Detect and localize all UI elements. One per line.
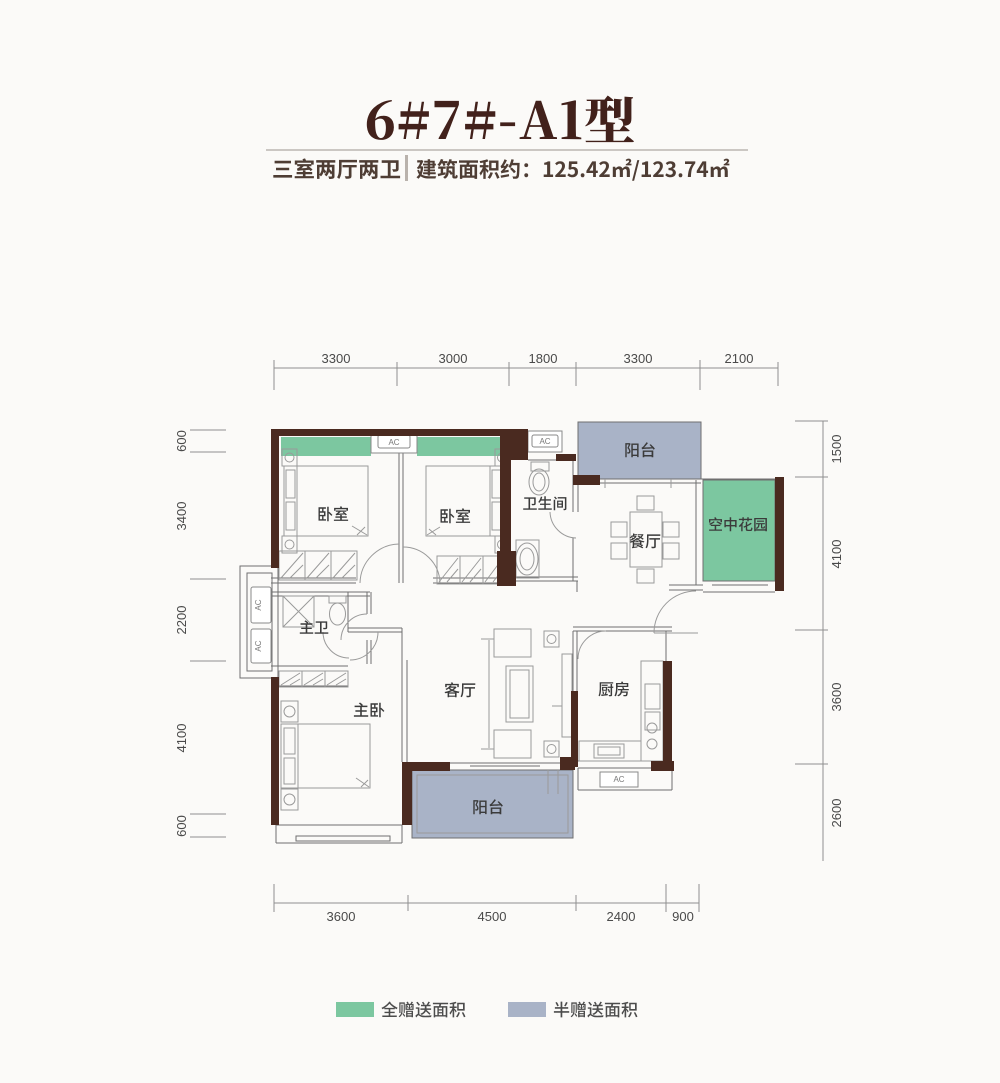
svg-text:4100: 4100 [829,540,844,569]
svg-text:1500: 1500 [829,435,844,464]
svg-text:3600: 3600 [327,909,356,924]
svg-text:AC: AC [254,640,263,651]
svg-text:4100: 4100 [174,724,189,753]
svg-text:2400: 2400 [607,909,636,924]
svg-text:600: 600 [174,430,189,452]
svg-text:AC: AC [388,438,399,447]
svg-text:AC: AC [254,599,263,610]
svg-text:900: 900 [672,909,694,924]
svg-text:600: 600 [174,815,189,837]
svg-text:2200: 2200 [174,606,189,635]
svg-text:4500: 4500 [478,909,507,924]
svg-text:3600: 3600 [829,683,844,712]
svg-text:2600: 2600 [829,799,844,828]
svg-text:3000: 3000 [439,351,468,366]
svg-text:2100: 2100 [725,351,754,366]
svg-text:3300: 3300 [322,351,351,366]
svg-text:AC: AC [613,775,624,784]
svg-text:3300: 3300 [624,351,653,366]
svg-text:AC: AC [539,437,550,446]
svg-text:3400: 3400 [174,502,189,531]
svg-text:1800: 1800 [529,351,558,366]
